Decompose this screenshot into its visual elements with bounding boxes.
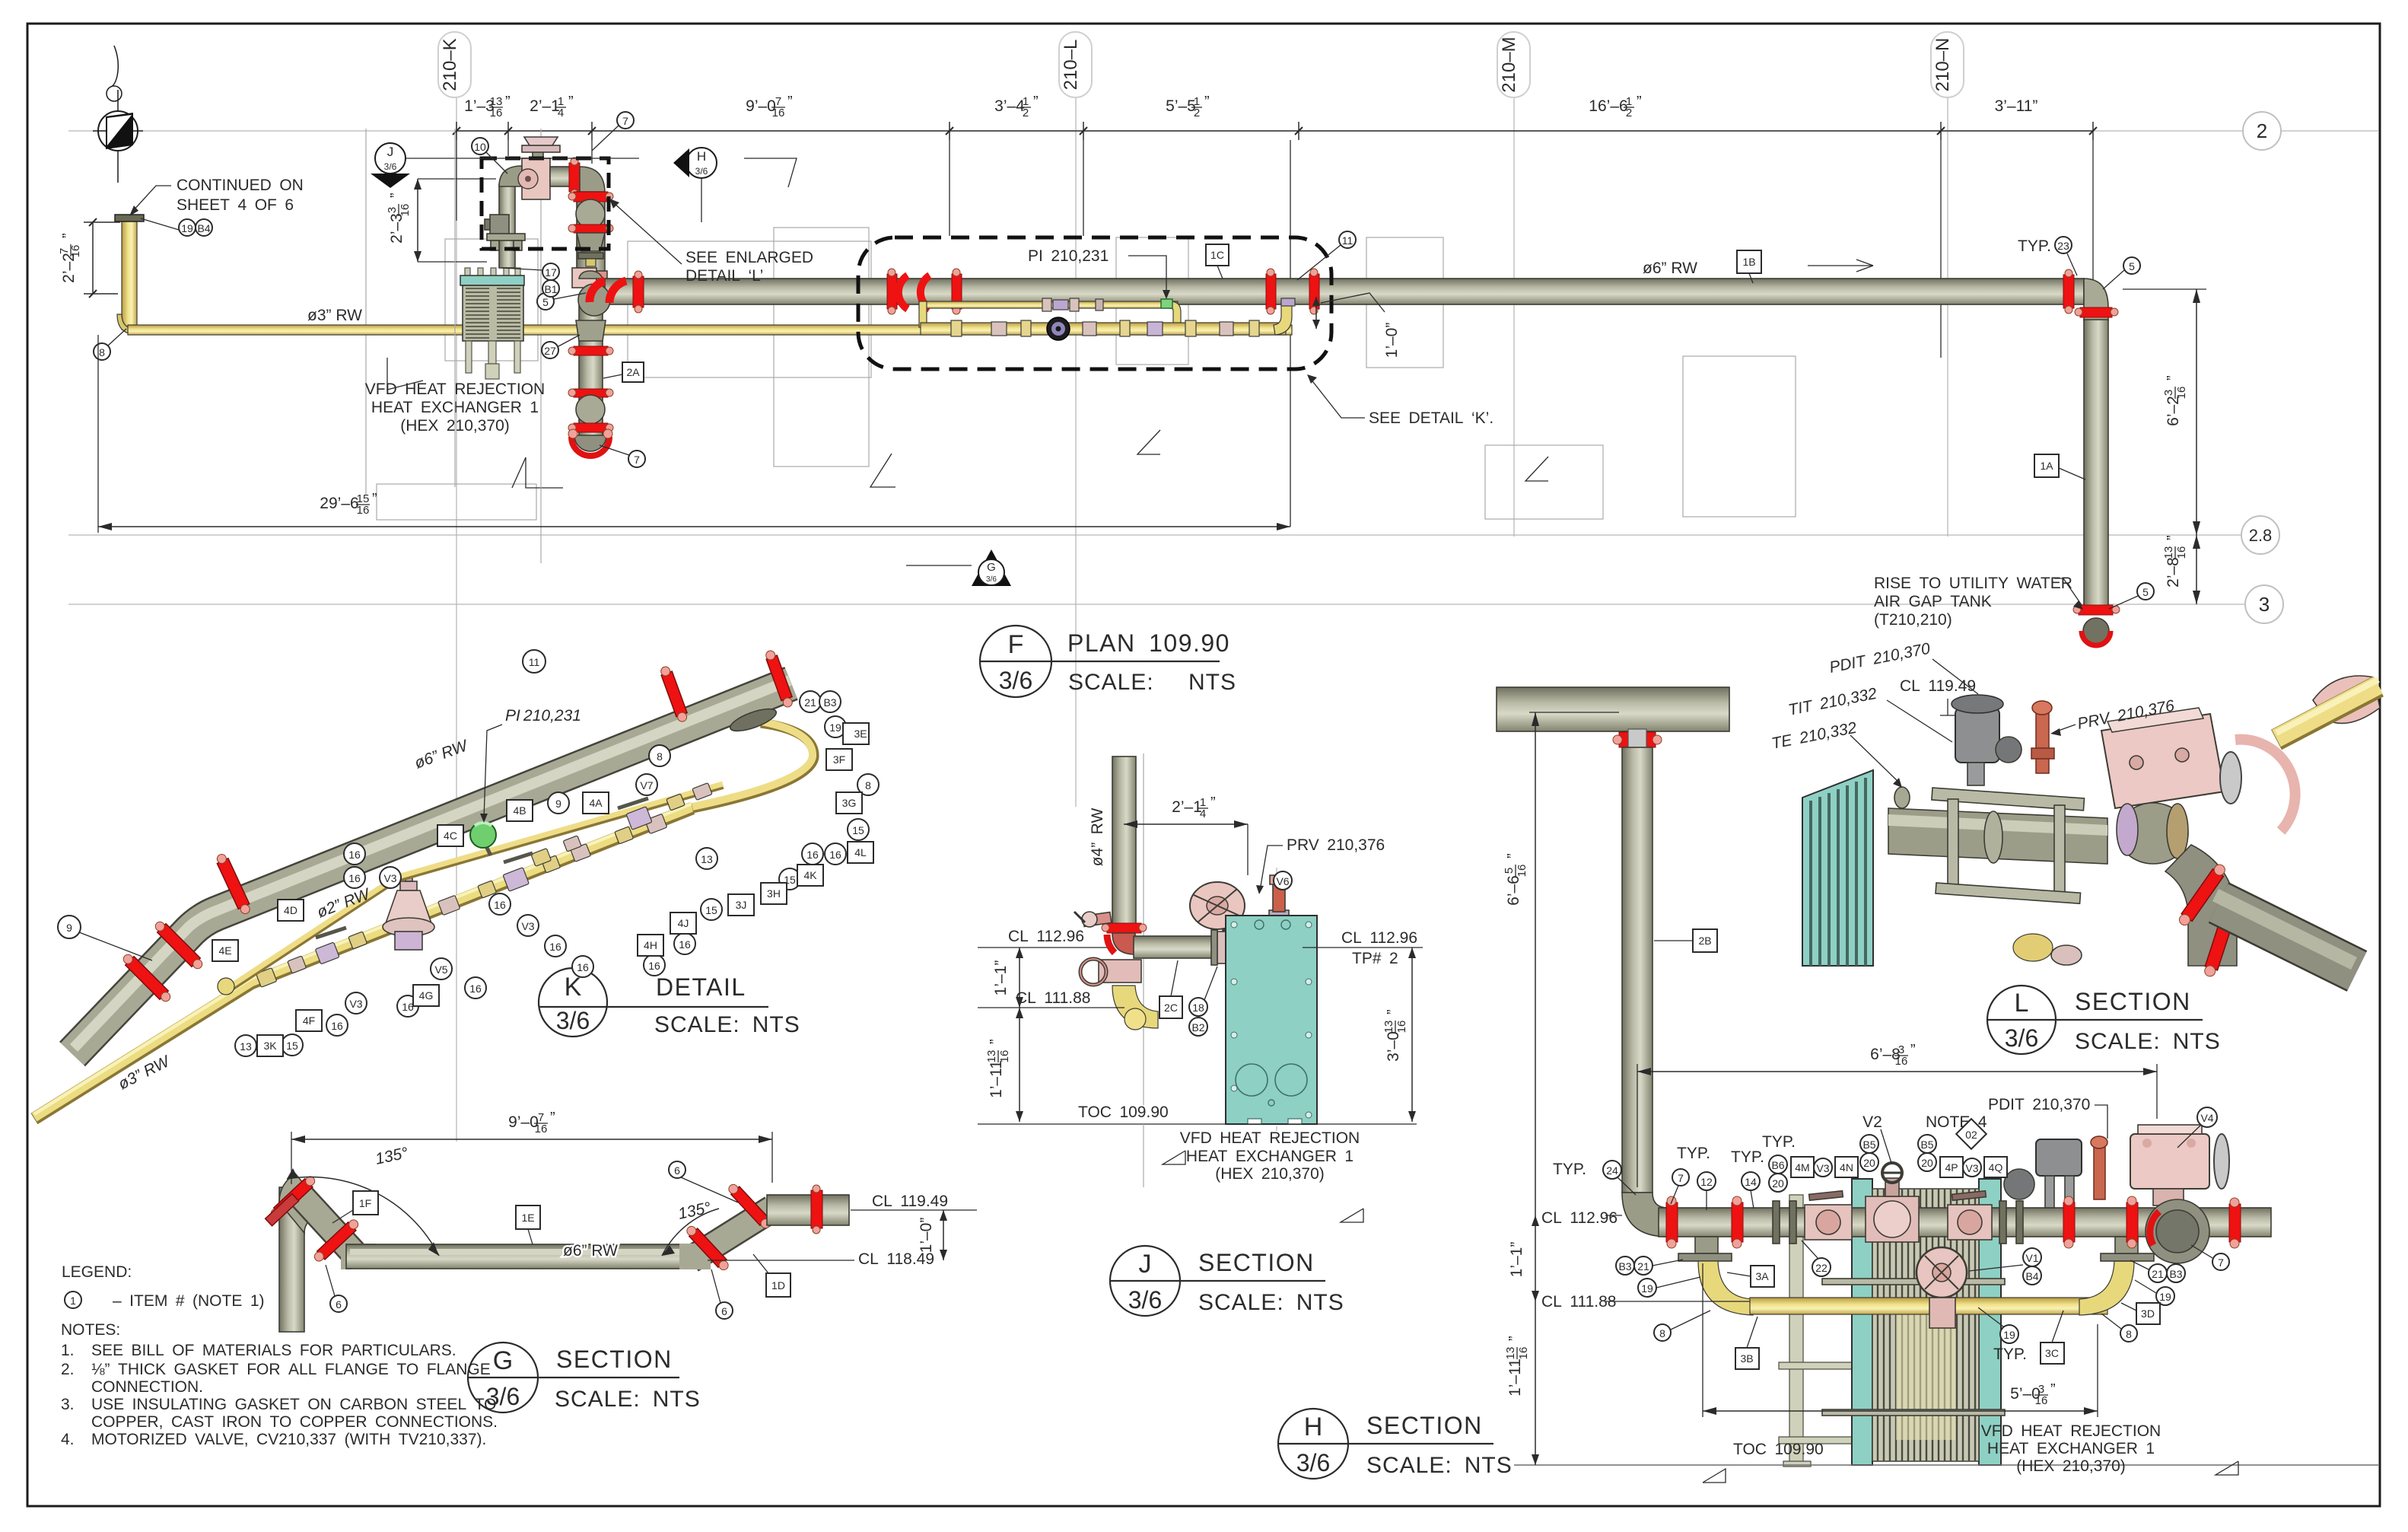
- svg-text:6’–6: 6’–6: [1505, 875, 1522, 906]
- svg-text:2’–1: 2’–1: [530, 97, 560, 115]
- svg-text:16’–6: 16’–6: [1589, 97, 1627, 115]
- svg-text:16: 16: [829, 849, 841, 861]
- svg-text:6: 6: [721, 1305, 727, 1317]
- svg-text:CONTINUED ON: CONTINUED ON: [177, 177, 304, 194]
- svg-text:16: 16: [679, 938, 691, 951]
- svg-text:3/6: 3/6: [695, 166, 708, 177]
- svg-text:2.8: 2.8: [2249, 526, 2273, 545]
- svg-text:19: 19: [2159, 1291, 2171, 1303]
- svg-text:4J: 4J: [678, 917, 689, 929]
- svg-text:”: ”: [388, 193, 405, 198]
- svg-text:ø4” RW: ø4” RW: [1089, 808, 1106, 867]
- svg-text:TYP.: TYP.: [1553, 1161, 1586, 1178]
- svg-text:SCALE: NTS: SCALE: NTS: [1198, 1290, 1344, 1315]
- svg-text:2A: 2A: [626, 366, 640, 378]
- svg-text:AIR GAP TANK: AIR GAP TANK: [1874, 593, 1992, 610]
- svg-text:”: ”: [2165, 375, 2181, 381]
- svg-text:ø6” RW: ø6” RW: [563, 1242, 618, 1260]
- svg-text:16: 16: [772, 107, 785, 119]
- svg-text:4B: 4B: [513, 804, 526, 817]
- svg-text:”: ”: [1637, 94, 1642, 110]
- svg-text:1.: 1.: [61, 1342, 75, 1359]
- svg-text:7: 7: [622, 115, 628, 127]
- svg-text:19: 19: [1641, 1282, 1653, 1295]
- svg-text:SCALE: NTS: SCALE: NTS: [654, 1012, 800, 1037]
- svg-text:16: 16: [806, 849, 819, 861]
- svg-text:3: 3: [2162, 390, 2175, 396]
- svg-text:HEAT EXCHANGER 1: HEAT EXCHANGER 1: [1987, 1440, 2155, 1457]
- svg-text:TOC 109.90: TOC 109.90: [1733, 1441, 1824, 1458]
- svg-text:3’–0: 3’–0: [1385, 1031, 1402, 1062]
- svg-text:16: 16: [469, 983, 482, 995]
- svg-text:PI 210,231: PI 210,231: [1028, 247, 1109, 265]
- svg-text:4C: 4C: [444, 830, 457, 842]
- svg-text:SCALE:: SCALE:: [1068, 670, 1154, 695]
- svg-text:29’–6: 29’–6: [320, 495, 358, 512]
- svg-text:13: 13: [2162, 546, 2175, 559]
- svg-text:2: 2: [1194, 107, 1200, 119]
- svg-text:4G: 4G: [419, 989, 434, 1002]
- svg-text:4Q: 4Q: [1989, 1161, 2003, 1174]
- svg-text:16: 16: [1395, 1021, 1408, 1034]
- svg-text:1: 1: [70, 1295, 76, 1307]
- svg-text:LEGEND:: LEGEND:: [62, 1263, 132, 1281]
- svg-text:PDIT 210,370: PDIT 210,370: [1988, 1096, 2090, 1113]
- svg-text:3F: 3F: [833, 753, 845, 766]
- svg-text:⅛” THICK GASKET FOR ALL FLANGE: ⅛” THICK GASKET FOR ALL FLANGE TO FLANGE: [91, 1361, 491, 1378]
- svg-text:B3: B3: [2169, 1268, 2182, 1280]
- svg-text:2: 2: [2257, 119, 2267, 142]
- svg-text:8: 8: [1659, 1327, 1665, 1339]
- svg-text:CL 111.88: CL 111.88: [1016, 989, 1090, 1007]
- svg-text:16: 16: [577, 961, 589, 973]
- svg-text:1C: 1C: [1210, 249, 1224, 261]
- svg-text:6: 6: [336, 1298, 342, 1311]
- svg-text:8: 8: [99, 346, 105, 358]
- svg-text:5: 5: [2129, 260, 2135, 272]
- svg-text:SEE DETAIL ‘K’.: SEE DETAIL ‘K’.: [1369, 409, 1493, 427]
- svg-text:11: 11: [529, 656, 540, 668]
- svg-text:”: ”: [988, 1039, 1004, 1044]
- svg-text:210–L: 210–L: [1061, 40, 1081, 91]
- svg-text:TYP.: TYP.: [1731, 1148, 1764, 1166]
- svg-text:NTS: NTS: [1188, 670, 1236, 695]
- svg-text:B6: B6: [1771, 1159, 1784, 1171]
- svg-text:5: 5: [542, 296, 549, 308]
- svg-text:TOC 109.90: TOC 109.90: [1078, 1104, 1169, 1121]
- svg-text:16: 16: [1895, 1055, 1908, 1068]
- svg-text:TYP.: TYP.: [1677, 1145, 1710, 1162]
- svg-text:B5: B5: [1862, 1139, 1875, 1151]
- svg-text:CL 112.96: CL 112.96: [1341, 929, 1417, 947]
- svg-text:16: 16: [399, 204, 412, 217]
- svg-text:15: 15: [852, 824, 864, 836]
- svg-text:V3: V3: [1816, 1162, 1829, 1174]
- svg-text:B3: B3: [823, 696, 836, 709]
- svg-text:(HEX 210,370): (HEX 210,370): [2016, 1457, 2126, 1475]
- svg-text:V2: V2: [1862, 1113, 1882, 1131]
- svg-text:15: 15: [705, 904, 717, 916]
- svg-text:16: 16: [549, 941, 561, 953]
- svg-text:(T210,210): (T210,210): [1874, 611, 1952, 629]
- svg-text:13: 13: [1504, 1347, 1517, 1360]
- svg-text:16: 16: [331, 1020, 343, 1032]
- svg-text:B5: B5: [1920, 1139, 1933, 1151]
- svg-text:3K: 3K: [263, 1040, 277, 1052]
- svg-text:HEAT EXCHANGER 1: HEAT EXCHANGER 1: [1186, 1148, 1354, 1165]
- svg-text:PRV 210,376: PRV 210,376: [1287, 836, 1385, 854]
- svg-text:3B: 3B: [1740, 1352, 1753, 1365]
- svg-text:J: J: [387, 145, 394, 159]
- svg-text:”: ”: [2050, 1381, 2056, 1398]
- svg-text:PI 210,231: PI 210,231: [505, 707, 581, 725]
- svg-text:02: 02: [1965, 1129, 1977, 1141]
- svg-text:19: 19: [2003, 1329, 2015, 1341]
- svg-text:1D: 1D: [771, 1279, 785, 1292]
- svg-text:2: 2: [1626, 107, 1632, 119]
- svg-text:”: ”: [60, 233, 77, 238]
- svg-text:18: 18: [1192, 1002, 1204, 1014]
- svg-text:210–K: 210–K: [440, 38, 460, 91]
- svg-text:15: 15: [286, 1040, 298, 1052]
- svg-text:7: 7: [2218, 1256, 2224, 1269]
- svg-text:16: 16: [357, 504, 370, 517]
- svg-text:PLAN 109.90: PLAN 109.90: [1067, 629, 1230, 657]
- svg-text:V3: V3: [521, 920, 534, 932]
- svg-text:13: 13: [240, 1040, 252, 1053]
- svg-text:(HEX 210,370): (HEX 210,370): [1215, 1165, 1325, 1183]
- svg-text:4M: 4M: [1795, 1161, 1809, 1174]
- svg-text:ø3” RW: ø3” RW: [307, 307, 362, 324]
- svg-text:9: 9: [555, 798, 561, 810]
- svg-text:3G: 3G: [842, 797, 857, 809]
- svg-text:2: 2: [1023, 107, 1029, 119]
- svg-text:USE INSULATING GASKET ON CARBO: USE INSULATING GASKET ON CARBON STEEL TO: [91, 1396, 497, 1413]
- svg-text:19: 19: [829, 721, 841, 734]
- svg-text:1A: 1A: [2040, 460, 2053, 472]
- svg-text:SEE ENLARGED: SEE ENLARGED: [686, 249, 813, 266]
- svg-text:11: 11: [1342, 234, 1354, 247]
- svg-text:ø6” RW: ø6” RW: [1643, 260, 1697, 277]
- svg-text:”: ”: [550, 1110, 555, 1126]
- svg-text:23: 23: [2057, 240, 2069, 252]
- svg-text:1E: 1E: [521, 1212, 534, 1224]
- svg-text:SECTION: SECTION: [1198, 1249, 1315, 1276]
- svg-text:H: H: [1304, 1413, 1323, 1441]
- svg-text:V5: V5: [434, 963, 447, 976]
- svg-text:5: 5: [2142, 586, 2149, 598]
- svg-text:G: G: [987, 561, 996, 574]
- svg-text:6’–2: 6’–2: [2165, 396, 2182, 426]
- svg-text:21: 21: [2152, 1268, 2164, 1280]
- svg-text:3/6: 3/6: [556, 1007, 590, 1034]
- svg-text:4P: 4P: [1945, 1161, 1958, 1174]
- svg-text:SCALE: NTS: SCALE: NTS: [1366, 1453, 1513, 1478]
- svg-text:SECTION: SECTION: [556, 1346, 673, 1373]
- svg-text:3H: 3H: [767, 887, 781, 900]
- svg-text:21: 21: [1637, 1260, 1649, 1272]
- svg-text:3A: 3A: [1755, 1270, 1769, 1282]
- svg-text:B4: B4: [197, 222, 210, 234]
- svg-text:21: 21: [804, 696, 816, 709]
- svg-text:– ITEM # (NOTE 1): – ITEM # (NOTE 1): [113, 1292, 265, 1310]
- svg-text:1’–0”: 1’–0”: [1383, 323, 1401, 358]
- svg-text:16: 16: [494, 899, 506, 911]
- svg-text:4: 4: [1200, 807, 1206, 820]
- svg-text:20: 20: [1772, 1177, 1784, 1190]
- svg-text:20: 20: [1921, 1157, 1933, 1169]
- svg-text:16: 16: [1517, 1347, 1530, 1360]
- svg-text:16: 16: [998, 1050, 1011, 1063]
- svg-text:CL 112.96: CL 112.96: [1541, 1209, 1618, 1227]
- svg-text:SECTION: SECTION: [2075, 988, 2191, 1015]
- svg-text:B2: B2: [1191, 1021, 1204, 1034]
- svg-text:SEE BILL OF MATERIALS FOR PART: SEE BILL OF MATERIALS FOR PARTICULARS.: [91, 1342, 456, 1359]
- svg-text:F: F: [1008, 630, 1024, 659]
- svg-text:3: 3: [2259, 593, 2270, 616]
- svg-text:20: 20: [1863, 1157, 1875, 1169]
- svg-text:16: 16: [348, 872, 361, 884]
- svg-text:V3: V3: [1965, 1162, 1978, 1174]
- svg-text:TP# 2: TP# 2: [1352, 950, 1398, 967]
- svg-text:16: 16: [1516, 865, 1528, 877]
- svg-text:4N: 4N: [1840, 1161, 1853, 1174]
- svg-text:2’–3: 2’–3: [388, 213, 406, 244]
- svg-text:210–N: 210–N: [1932, 38, 1953, 92]
- svg-text:3.: 3.: [61, 1396, 75, 1413]
- svg-text:”: ”: [505, 94, 511, 110]
- svg-text:16: 16: [648, 960, 660, 972]
- svg-text:H: H: [697, 149, 706, 164]
- svg-text:”: ”: [1033, 94, 1039, 110]
- svg-text:V6: V6: [1276, 875, 1289, 887]
- svg-text:V7: V7: [640, 779, 653, 791]
- svg-text:3E: 3E: [854, 728, 867, 740]
- svg-text:13: 13: [1382, 1021, 1395, 1034]
- svg-text:2C: 2C: [1164, 1002, 1178, 1014]
- svg-text:CL 119.49: CL 119.49: [1900, 677, 1976, 695]
- svg-text:SHEET 4 OF 6: SHEET 4 OF 6: [177, 196, 294, 214]
- svg-text:2’–8: 2’–8: [2165, 557, 2182, 588]
- svg-text:V1: V1: [2025, 1252, 2038, 1264]
- svg-text:1B: 1B: [1742, 256, 1755, 268]
- svg-text:4: 4: [558, 107, 564, 119]
- svg-text:4K: 4K: [803, 869, 817, 881]
- svg-text:16: 16: [535, 1123, 548, 1135]
- svg-text:B4: B4: [2025, 1270, 2038, 1282]
- svg-text:VFD HEAT REJECTION: VFD HEAT REJECTION: [1981, 1422, 2161, 1440]
- svg-text:”: ”: [1385, 1009, 1401, 1014]
- svg-text:L: L: [2015, 989, 2029, 1018]
- svg-text:CONNECTION.: CONNECTION.: [91, 1378, 203, 1396]
- svg-text:”: ”: [372, 491, 377, 508]
- svg-text:G: G: [493, 1346, 513, 1375]
- svg-text:4.: 4.: [61, 1431, 75, 1448]
- svg-text:3/6: 3/6: [384, 161, 397, 172]
- svg-text:2B: 2B: [1698, 935, 1711, 947]
- svg-text:6: 6: [674, 1164, 680, 1177]
- svg-text:CL 119.49: CL 119.49: [872, 1193, 948, 1210]
- svg-text:16: 16: [2035, 1394, 2048, 1407]
- svg-text:3’–11”: 3’–11”: [1995, 97, 2038, 115]
- svg-text:”: ”: [1505, 853, 1522, 858]
- svg-text:COPPER, CAST IRON TO COPPER CO: COPPER, CAST IRON TO COPPER CONNECTIONS.: [91, 1413, 498, 1431]
- svg-text:8: 8: [657, 750, 663, 763]
- svg-text:13: 13: [701, 853, 713, 865]
- svg-text:TYP.: TYP.: [1762, 1133, 1796, 1151]
- svg-text:10: 10: [474, 141, 486, 153]
- svg-text:4L: 4L: [854, 846, 867, 858]
- svg-text:12: 12: [1700, 1176, 1713, 1188]
- svg-text:4H: 4H: [644, 939, 657, 951]
- svg-text:1’–0”: 1’–0”: [918, 1218, 935, 1253]
- svg-text:16: 16: [2175, 546, 2188, 559]
- svg-text:1’–1”: 1’–1”: [1508, 1242, 1525, 1278]
- svg-text:3/6: 3/6: [1128, 1286, 1162, 1314]
- svg-text:4D: 4D: [284, 904, 297, 916]
- svg-text:3/6: 3/6: [486, 1383, 520, 1410]
- svg-text:210–M: 210–M: [1499, 37, 1519, 92]
- svg-text:16: 16: [2175, 387, 2188, 400]
- svg-text:J: J: [1139, 1250, 1152, 1279]
- svg-text:14: 14: [1745, 1176, 1757, 1188]
- svg-text:1’–11: 1’–11: [988, 1060, 1005, 1098]
- svg-text:16: 16: [490, 107, 503, 119]
- svg-text:RISE TO UTILITY WATER: RISE TO UTILITY WATER: [1874, 575, 2072, 592]
- svg-text:3/6: 3/6: [986, 575, 997, 584]
- svg-text:1F: 1F: [359, 1197, 371, 1209]
- svg-text:7: 7: [1678, 1172, 1684, 1184]
- svg-text:3C: 3C: [2045, 1347, 2059, 1359]
- svg-text:7: 7: [634, 454, 640, 466]
- svg-text:4E: 4E: [218, 944, 231, 957]
- svg-text:”: ”: [1910, 1042, 1916, 1059]
- svg-text:DETAIL ‘L’: DETAIL ‘L’: [686, 267, 763, 285]
- svg-text:B3: B3: [1618, 1260, 1631, 1272]
- svg-text:3/6: 3/6: [2005, 1024, 2038, 1052]
- svg-text:B1: B1: [544, 283, 557, 295]
- svg-text:2’–1: 2’–1: [1172, 798, 1202, 816]
- svg-text:SCALE: NTS: SCALE: NTS: [555, 1387, 701, 1412]
- svg-text:CL 112.96: CL 112.96: [1008, 928, 1084, 945]
- svg-text:27: 27: [544, 345, 556, 357]
- svg-text:TYP.: TYP.: [2018, 237, 2051, 255]
- svg-text:NOTES:: NOTES:: [61, 1321, 120, 1339]
- svg-text:16: 16: [348, 849, 361, 861]
- svg-text:TYP.: TYP.: [1993, 1346, 2027, 1363]
- svg-text:V3: V3: [383, 872, 396, 884]
- svg-text:16: 16: [402, 1001, 414, 1013]
- svg-text:1’–11: 1’–11: [1506, 1358, 1524, 1397]
- svg-text:V3: V3: [349, 998, 362, 1010]
- svg-text:CL 111.88: CL 111.88: [1541, 1293, 1616, 1311]
- svg-text:24: 24: [1606, 1164, 1618, 1177]
- svg-text:”: ”: [1506, 1336, 1523, 1341]
- svg-text:3D: 3D: [2141, 1307, 2155, 1320]
- svg-text:1’–1”: 1’–1”: [992, 960, 1010, 996]
- svg-text:”: ”: [568, 94, 574, 110]
- svg-text:3/6: 3/6: [999, 667, 1032, 694]
- svg-text:SCALE: NTS: SCALE: NTS: [2075, 1029, 2221, 1054]
- svg-text:V4: V4: [2200, 1112, 2213, 1124]
- svg-text:2.: 2.: [61, 1361, 75, 1378]
- svg-text:8: 8: [865, 779, 871, 791]
- svg-text:8: 8: [2126, 1328, 2132, 1340]
- svg-text:5: 5: [1503, 868, 1516, 874]
- svg-text:SECTION: SECTION: [1366, 1412, 1483, 1439]
- svg-text:DETAIL: DETAIL: [656, 973, 746, 1001]
- svg-text:”: ”: [1204, 94, 1210, 110]
- svg-text:3J: 3J: [736, 899, 747, 911]
- svg-text:VFD HEAT REJECTION: VFD HEAT REJECTION: [1180, 1129, 1360, 1147]
- svg-text:22: 22: [1815, 1262, 1827, 1274]
- svg-text:17: 17: [545, 266, 557, 279]
- svg-text:4A: 4A: [589, 797, 603, 809]
- svg-text:”: ”: [787, 94, 793, 110]
- svg-text:”: ”: [2165, 535, 2181, 540]
- svg-text:19: 19: [181, 222, 193, 234]
- svg-text:13: 13: [985, 1050, 998, 1063]
- svg-text:”: ”: [1210, 795, 1216, 811]
- svg-text:4F: 4F: [303, 1014, 315, 1027]
- svg-text:5’–5: 5’–5: [1166, 97, 1196, 115]
- svg-text:3/6: 3/6: [1296, 1449, 1330, 1476]
- svg-text:MOTORIZED VALVE, CV210,337 (WI: MOTORIZED VALVE, CV210,337 (WITH TV210,3…: [91, 1431, 486, 1448]
- svg-text:3’–4: 3’–4: [994, 97, 1025, 115]
- svg-text:3: 3: [386, 207, 399, 213]
- svg-text:9: 9: [66, 922, 72, 934]
